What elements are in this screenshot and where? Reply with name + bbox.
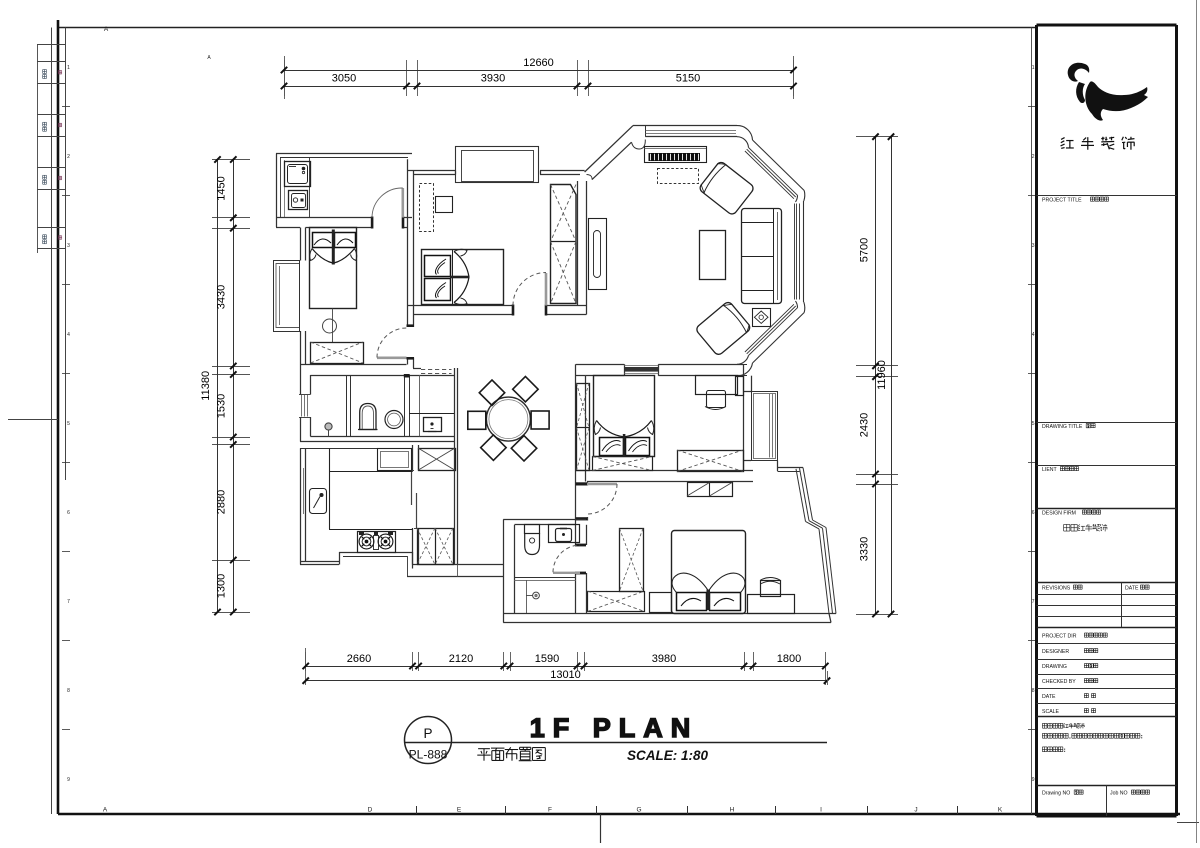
svg-text:2660: 2660: [347, 653, 371, 665]
svg-text:SCALE: 1:80: SCALE: 1:80: [627, 748, 709, 763]
svg-text:3050: 3050: [332, 73, 356, 85]
svg-text:1530: 1530: [216, 394, 228, 418]
svg-text:5150: 5150: [676, 73, 700, 85]
svg-text:J: J: [914, 807, 917, 814]
svg-text:DESIGNER: DESIGNER: [1042, 649, 1069, 655]
svg-text:SCALE: SCALE: [1042, 709, 1060, 715]
svg-text:Drawing NO: Drawing NO: [1042, 791, 1070, 797]
svg-text:DATE: DATE: [1042, 694, 1056, 700]
svg-text:2880: 2880: [216, 490, 228, 514]
svg-text:3330: 3330: [859, 537, 871, 561]
svg-text:6: 6: [67, 510, 70, 516]
svg-text:1: 1: [1032, 65, 1035, 71]
svg-text:7: 7: [1032, 599, 1035, 605]
svg-text:7: 7: [67, 599, 70, 605]
svg-text:8: 8: [1032, 688, 1035, 694]
svg-text:DRAWING TITLE: DRAWING TITLE: [1042, 424, 1083, 430]
svg-text:3: 3: [1032, 243, 1035, 249]
svg-text:Job NO: Job NO: [1110, 791, 1128, 797]
svg-text:A: A: [104, 26, 109, 33]
svg-text:5700: 5700: [859, 238, 871, 262]
svg-text:3980: 3980: [652, 653, 676, 665]
svg-text:P: P: [423, 726, 432, 741]
svg-text:REVISIONS: REVISIONS: [1042, 586, 1071, 592]
svg-text:DATE: DATE: [1125, 586, 1139, 592]
svg-text:3: 3: [67, 243, 70, 249]
svg-text:LIENT: LIENT: [1042, 467, 1058, 473]
svg-text:F: F: [548, 807, 552, 814]
svg-text:D: D: [368, 807, 373, 814]
svg-text:K: K: [998, 807, 1003, 814]
svg-text:8: 8: [67, 688, 70, 694]
svg-text:2120: 2120: [449, 653, 473, 665]
svg-text:1590: 1590: [535, 653, 559, 665]
svg-text:13010: 13010: [550, 669, 581, 681]
svg-text:11380: 11380: [200, 371, 212, 401]
svg-text:3930: 3930: [481, 73, 505, 85]
svg-text:2: 2: [67, 154, 70, 160]
svg-text:A: A: [103, 807, 108, 814]
svg-text:2: 2: [1032, 154, 1035, 160]
svg-text:1: 1: [67, 65, 70, 71]
svg-text:9: 9: [67, 777, 70, 783]
svg-text:E: E: [457, 807, 462, 814]
svg-text:4: 4: [67, 332, 70, 338]
svg-text:11960: 11960: [876, 360, 888, 390]
svg-text:DESIGN FIRM: DESIGN FIRM: [1042, 511, 1076, 517]
svg-text:5: 5: [67, 421, 70, 427]
svg-text:1300: 1300: [216, 574, 228, 598]
svg-text:DRAWING: DRAWING: [1042, 664, 1067, 670]
svg-text:6: 6: [1032, 510, 1035, 516]
svg-text:I: I: [820, 807, 822, 814]
svg-text:2430: 2430: [859, 413, 871, 437]
svg-text:1800: 1800: [777, 653, 801, 665]
svg-text:1F PLAN: 1F PLAN: [530, 713, 699, 743]
svg-text:CHECKED BY: CHECKED BY: [1042, 679, 1076, 685]
svg-text:9: 9: [1032, 777, 1035, 783]
svg-text:1450: 1450: [216, 176, 228, 200]
svg-text:3430: 3430: [216, 285, 228, 309]
svg-text:H: H: [730, 807, 735, 814]
svg-text:5: 5: [1032, 421, 1035, 427]
svg-text:PROJECT TITLE: PROJECT TITLE: [1042, 198, 1082, 204]
svg-text:PL-888: PL-888: [409, 748, 448, 762]
svg-text:4: 4: [1032, 332, 1035, 338]
svg-text:PROJECT DIR: PROJECT DIR: [1042, 634, 1077, 640]
svg-text:12660: 12660: [523, 57, 554, 69]
svg-text:G: G: [636, 807, 641, 814]
